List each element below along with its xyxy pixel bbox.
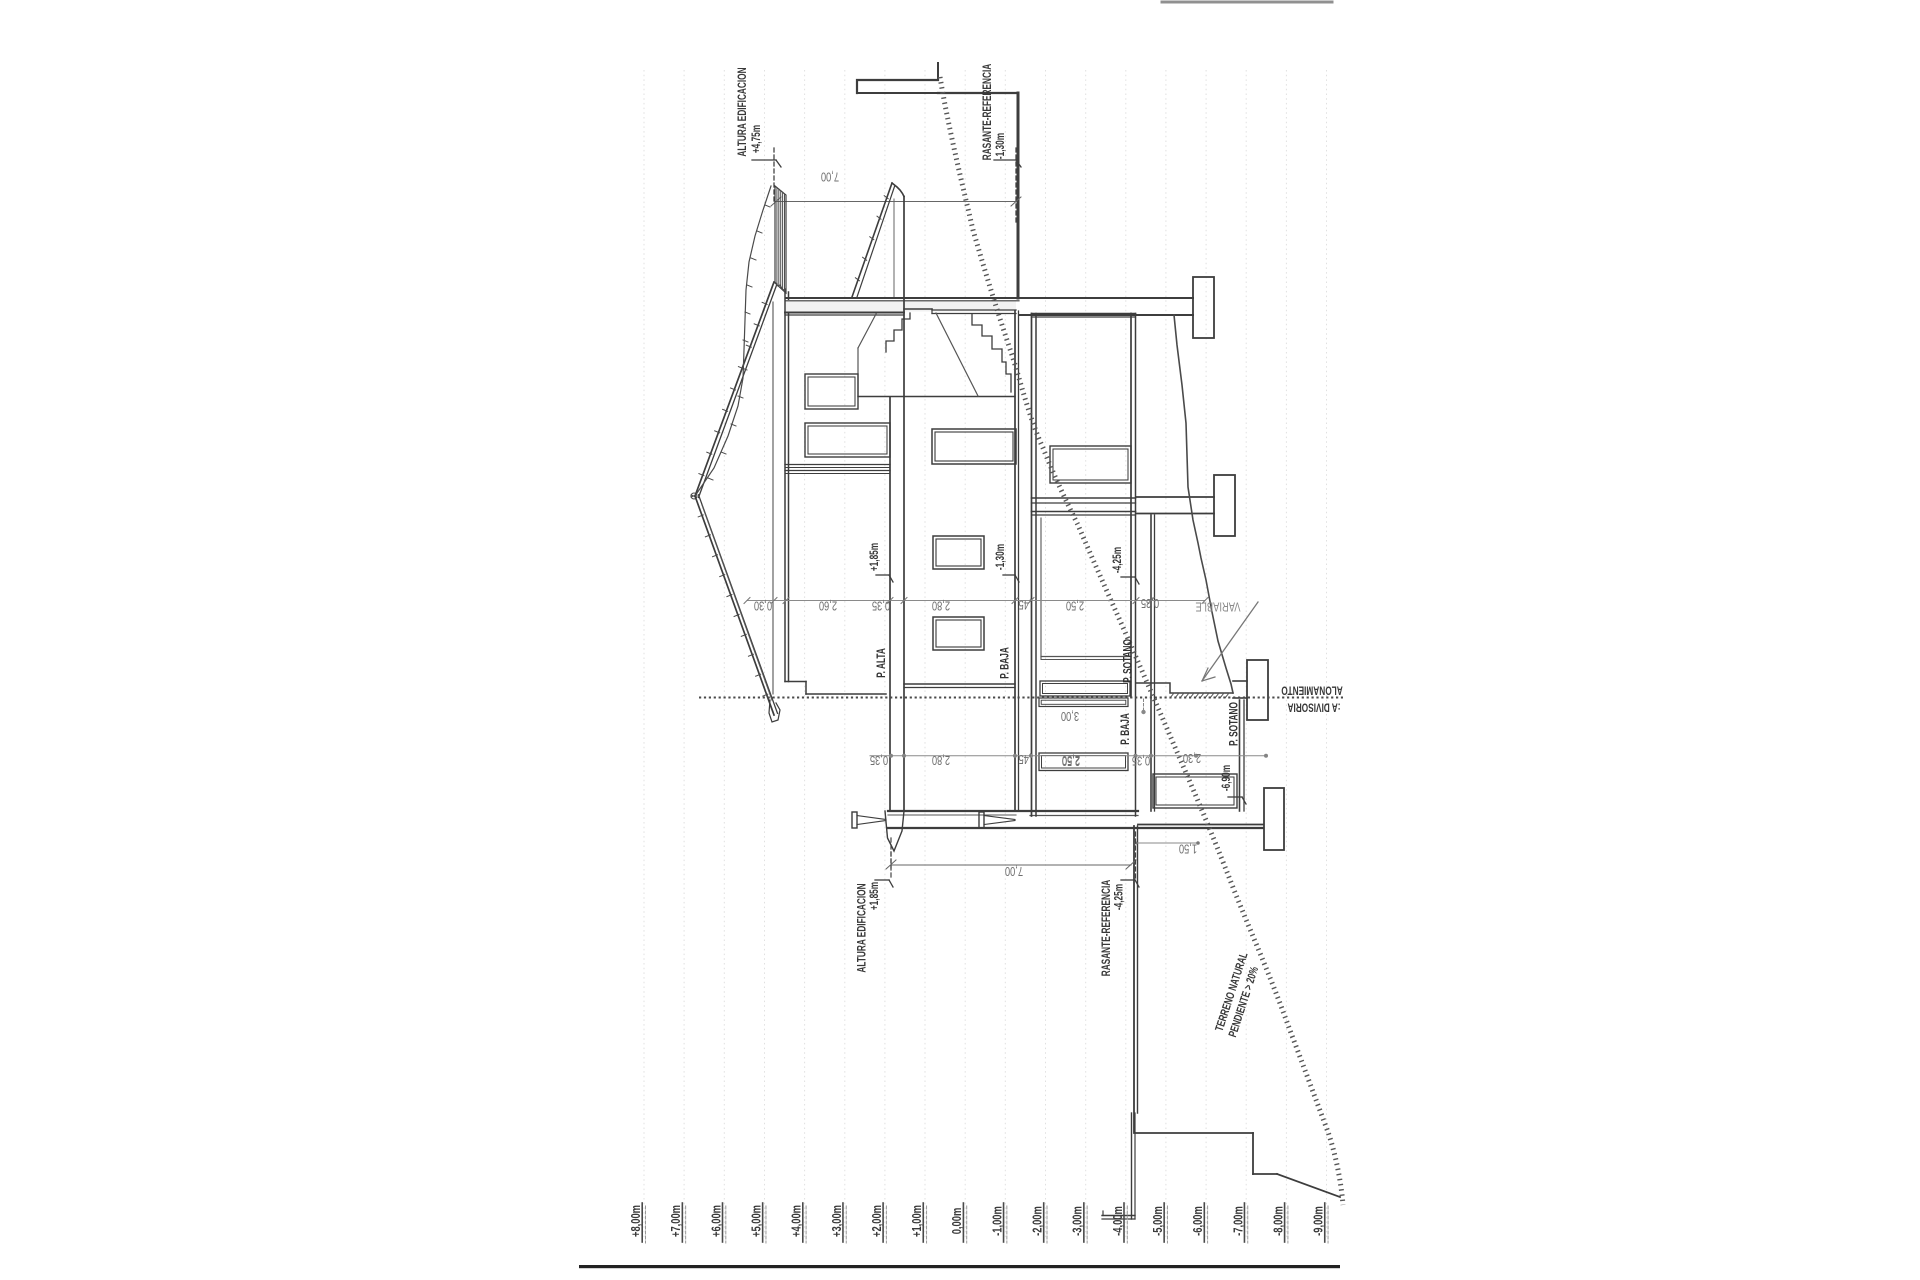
svg-text:-2,00m: -2,00m [1031, 1206, 1045, 1236]
svg-text:+4,75m: +4,75m [751, 125, 764, 153]
svg-text:0,35: 0,35 [872, 598, 890, 612]
svg-text::A DIVISORIA: :A DIVISORIA [1287, 700, 1340, 713]
svg-text:+7,00m: +7,00m [670, 1205, 684, 1237]
svg-text:+2,00m: +2,00m [871, 1205, 885, 1237]
svg-text:P. SOTANO: P. SOTANO [1122, 639, 1135, 683]
svg-text:ALONAMIENTO: ALONAMIENTO [1281, 683, 1343, 696]
svg-text:+1,85m: +1,85m [869, 543, 882, 571]
svg-text:-1,30m: -1,30m [995, 133, 1008, 159]
svg-text:RASANTE-REFERENCIA: RASANTE-REFERENCIA [1101, 880, 1114, 977]
svg-text:+1,85m: +1,85m [869, 882, 882, 910]
svg-text:-4,25m: -4,25m [1113, 884, 1126, 910]
svg-text:+5,00m: +5,00m [750, 1205, 764, 1237]
svg-text:-1,30m: -1,30m [995, 544, 1008, 570]
svg-text:7,00: 7,00 [821, 169, 839, 183]
svg-text:3,00: 3,00 [1061, 709, 1079, 723]
svg-text:-6,90m: -6,90m [1221, 765, 1234, 791]
svg-text:1,50: 1,50 [1179, 841, 1197, 855]
svg-text:0,35: 0,35 [1132, 753, 1150, 767]
svg-text:ALTURA EDIFICACION: ALTURA EDIFICACION [737, 67, 750, 156]
svg-text:+8,00m: +8,00m [630, 1205, 644, 1237]
svg-text:ALTURA EDIFICACION: ALTURA EDIFICACION [856, 883, 869, 972]
svg-text:P. BAJA: P. BAJA [999, 647, 1012, 679]
svg-text:+6,00m: +6,00m [710, 1205, 724, 1237]
svg-text:2,50: 2,50 [1062, 754, 1080, 768]
svg-text:,45: ,45 [1018, 597, 1031, 611]
svg-text:+3,00m: +3,00m [831, 1205, 845, 1237]
svg-text:-4,25m: -4,25m [1112, 547, 1125, 573]
svg-text:P. BAJA: P. BAJA [1120, 713, 1133, 745]
svg-text:-5,00m: -5,00m [1152, 1206, 1166, 1236]
svg-text:RASANTE-REFERENCIA: RASANTE-REFERENCIA [982, 64, 995, 161]
svg-text:+4,00m: +4,00m [790, 1205, 804, 1237]
svg-text:2,80: 2,80 [932, 753, 950, 767]
svg-text:-4,00m: -4,00m [1112, 1206, 1126, 1236]
svg-text:0,30: 0,30 [754, 598, 772, 612]
svg-text:0,35: 0,35 [870, 753, 888, 767]
svg-text:2,30: 2,30 [1183, 751, 1201, 765]
svg-text:VARIABLE: VARIABLE [1195, 599, 1240, 613]
svg-text:-1,00m: -1,00m [991, 1206, 1005, 1236]
svg-text:-3,00m: -3,00m [1071, 1206, 1085, 1236]
svg-text:-9,00m: -9,00m [1312, 1206, 1326, 1236]
svg-text:-6,00m: -6,00m [1192, 1206, 1206, 1236]
svg-text:-7,00m: -7,00m [1232, 1206, 1246, 1236]
svg-text:P. SOTANO: P. SOTANO [1228, 702, 1241, 746]
svg-text:2,50: 2,50 [1066, 598, 1084, 612]
svg-text:P. ALTA: P. ALTA [876, 648, 889, 678]
svg-text:0,35: 0,35 [1141, 596, 1159, 610]
svg-text:7,00: 7,00 [1005, 864, 1023, 878]
svg-text:0,00m: 0,00m [951, 1208, 965, 1235]
svg-text:+1,00m: +1,00m [911, 1205, 925, 1237]
svg-text:2,80: 2,80 [932, 598, 950, 612]
svg-text:-8,00m: -8,00m [1272, 1206, 1286, 1236]
svg-text:,45: ,45 [1018, 752, 1031, 766]
svg-text:2,60: 2,60 [819, 598, 837, 612]
